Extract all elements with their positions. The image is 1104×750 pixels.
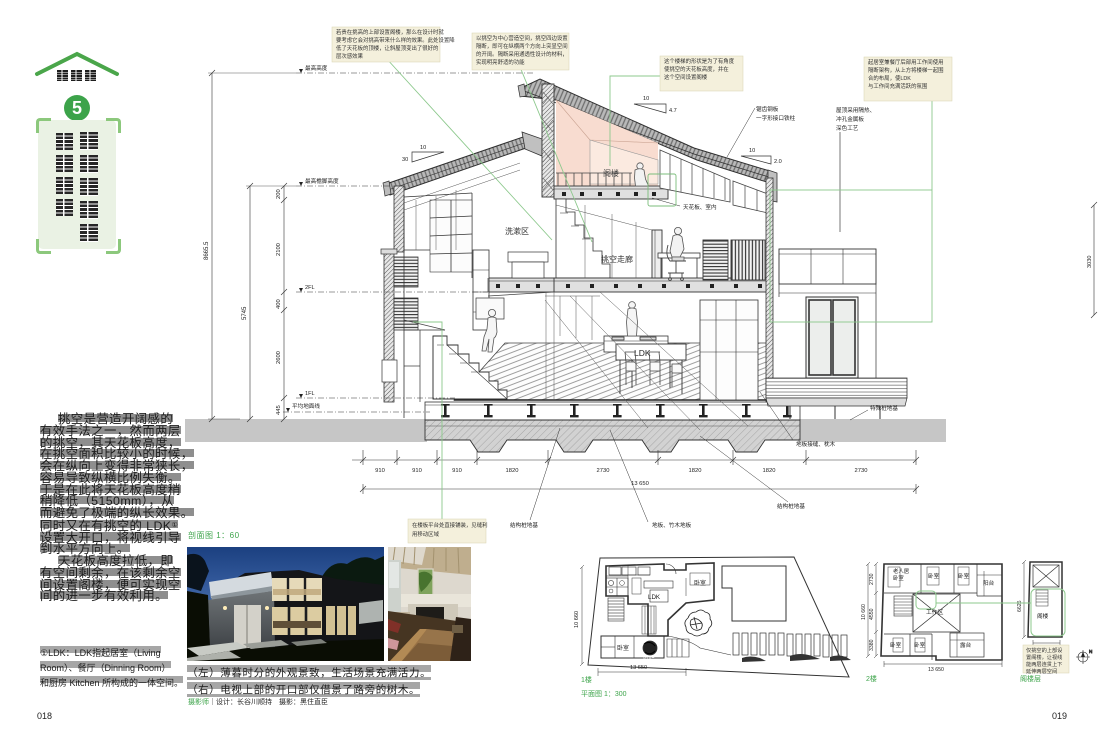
svg-text:阁楼层: 阁楼层: [1020, 674, 1041, 683]
svg-text:13 650: 13 650: [928, 667, 944, 673]
svg-text:阳台: 阳台: [983, 579, 995, 587]
svg-text:平面图 1：300: 平面图 1：300: [581, 690, 627, 698]
svg-text:卧室: 卧室: [890, 641, 902, 649]
svg-text:露台: 露台: [960, 641, 972, 649]
svg-text:卧室: 卧室: [958, 572, 970, 580]
svg-text:卧室: 卧室: [914, 641, 926, 649]
svg-text:卧室: 卧室: [617, 644, 629, 652]
svg-text:置阁楼，让视线: 置阁楼，让视线: [1026, 653, 1062, 661]
svg-text:延伸两层空间: 延伸两层空间: [1026, 667, 1057, 675]
svg-text:阁楼: 阁楼: [1037, 612, 1049, 620]
svg-text:4550: 4550: [869, 608, 875, 620]
svg-text:2730: 2730: [869, 573, 875, 585]
svg-text:13 650: 13 650: [630, 665, 647, 671]
svg-text:6626: 6626: [1017, 600, 1023, 612]
svg-text:卧室: 卧室: [694, 579, 706, 587]
svg-text:LDK: LDK: [648, 594, 661, 601]
svg-text:3380: 3380: [869, 639, 875, 651]
svg-text:2楼: 2楼: [866, 674, 877, 683]
svg-text:10 660: 10 660: [861, 604, 867, 620]
svg-text:1楼: 1楼: [581, 675, 592, 684]
svg-text:仅挑空的上部设: 仅挑空的上部设: [1026, 646, 1062, 654]
svg-text:10 660: 10 660: [574, 611, 580, 628]
svg-text:N: N: [1089, 649, 1092, 654]
svg-text:庭院: 庭院: [643, 655, 655, 663]
svg-text:老人居: 老人居: [893, 567, 910, 575]
svg-text:能两层连贯上下: 能两层连贯上下: [1026, 660, 1062, 668]
svg-text:卧室: 卧室: [928, 572, 940, 580]
svg-text:卧室: 卧室: [893, 574, 904, 582]
